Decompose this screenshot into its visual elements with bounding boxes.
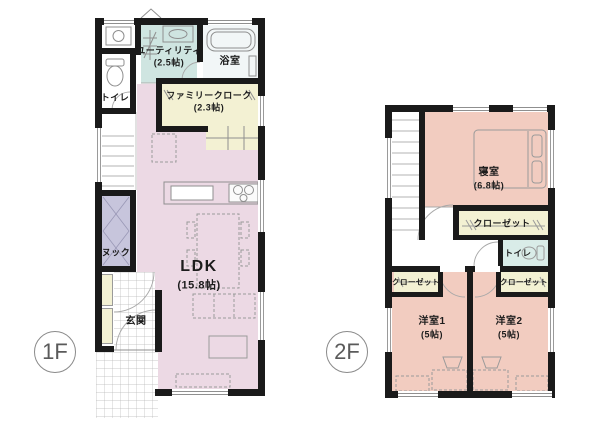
label-closet1: クローゼット <box>392 278 440 286</box>
floor-1-badge-text: 1F <box>42 339 68 365</box>
label-bath: 浴室 <box>220 57 241 67</box>
label-toilet-2f: トイレ <box>504 249 531 258</box>
room-2f-stairs <box>392 112 419 245</box>
label-nook: ヌック <box>102 249 131 258</box>
shoe-cabinet-lower <box>97 308 113 344</box>
room-1f-washer <box>102 25 135 48</box>
label-bedroom: 寝室 <box>479 168 500 178</box>
room-2f-bedroom <box>425 112 548 207</box>
label-room2-size: (5帖) <box>498 331 520 340</box>
label-genkan: 玄関 <box>126 317 147 327</box>
floor-1-badge: 1F <box>34 331 76 373</box>
label-bedroom-size: (6.8帖) <box>474 182 505 191</box>
label-room1-size: (5帖) <box>421 331 443 340</box>
label-ldk-size: (15.8帖) <box>177 281 220 292</box>
room-1f-cloak-counter <box>206 126 258 150</box>
label-toilet-1f: トイレ <box>101 94 130 103</box>
label-cloak: ファミリークローク <box>166 92 252 101</box>
porch-1f <box>96 352 158 418</box>
label-ldk: LDK <box>180 259 217 275</box>
floor-2-badge: 2F <box>326 331 368 373</box>
label-closet-bedroom: クローゼット <box>473 220 530 229</box>
label-closet2: クローゼット <box>500 278 548 286</box>
roof-vent-mark <box>141 9 161 18</box>
room-1f-stairs <box>102 112 134 190</box>
label-cloak-size: (2.3帖) <box>194 104 225 113</box>
label-room2: 洋室2 <box>495 317 522 327</box>
room-1f-bath <box>203 25 258 78</box>
shoe-cabinet-upper <box>97 274 113 306</box>
label-room1: 洋室1 <box>418 317 445 327</box>
floor-2-badge-text: 2F <box>334 339 360 365</box>
label-utility: ユーティリティ <box>136 47 201 56</box>
room-1f-genkan <box>114 272 155 352</box>
floorplan-canvas: ユーティリティ (2.5帖) 浴室 トイレ ファミリークローク (2.3帖) ヌ… <box>0 0 600 424</box>
label-utility-size: (2.5帖) <box>154 59 185 68</box>
